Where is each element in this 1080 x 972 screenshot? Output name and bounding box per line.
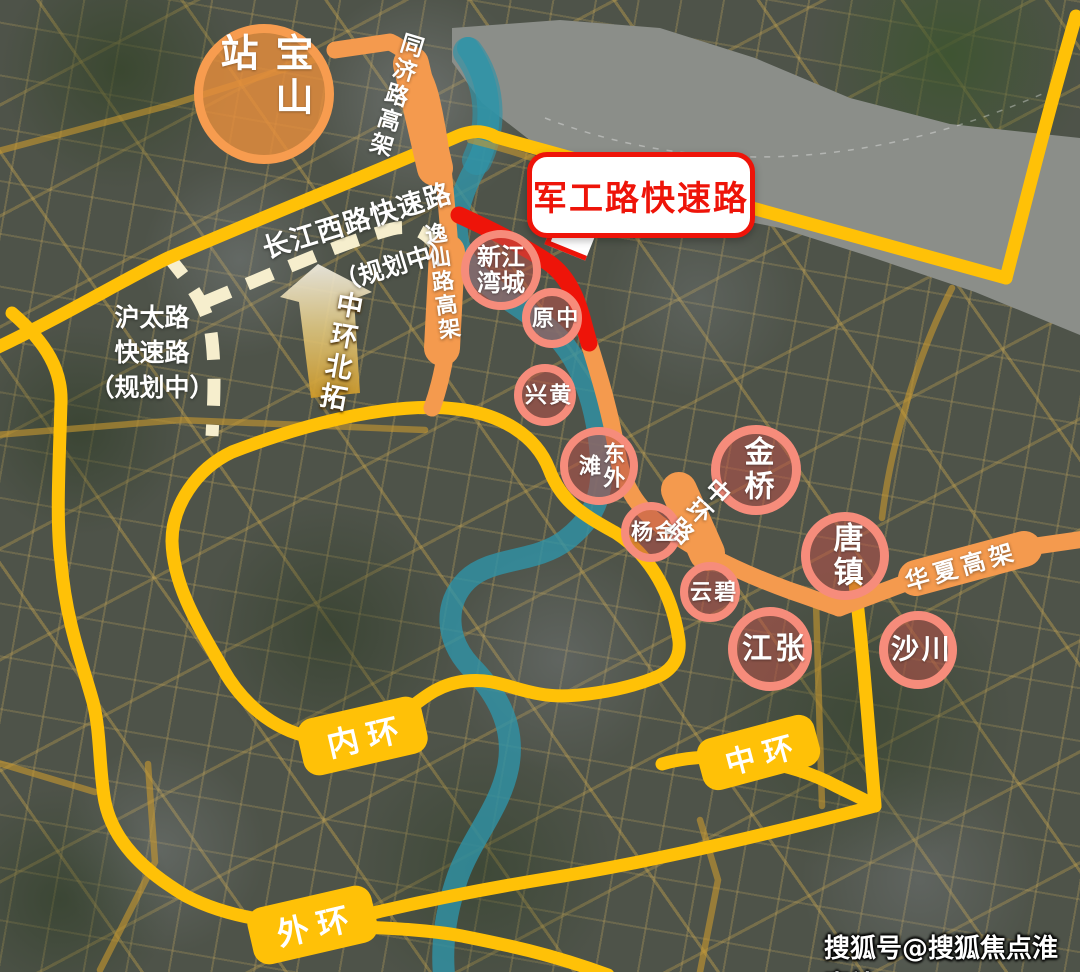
district-label: 金桥 [740, 436, 773, 504]
minor-road [0, 762, 95, 792]
station-label: 宝山站 [209, 33, 319, 155]
middle-ring-east-vertical [855, 583, 875, 806]
minor-road [882, 288, 952, 518]
district-label: 碧云 [686, 570, 734, 614]
district-circle-zhangjiang: 张江 [728, 607, 812, 691]
district-label: 东外滩 [575, 435, 623, 497]
district-label: 中原 [528, 296, 576, 340]
ring-badge-label: 外环 [272, 892, 362, 955]
callout-jungong: 军工路快速路 [527, 152, 755, 238]
district-label: 张江 [737, 616, 803, 682]
roads-layer [0, 0, 1080, 972]
district-circle-biyun: 碧云 [680, 562, 740, 622]
district-circle-zhongyuan: 中原 [522, 288, 582, 348]
district-circle-chuansha: 川沙 [879, 611, 957, 689]
district-circle-huangxing: 黄兴 [514, 364, 576, 426]
district-label: 黄兴 [521, 372, 569, 418]
district-label: 唐镇 [829, 522, 862, 590]
station-circle-baoshan: 宝山站 [194, 24, 334, 164]
district-circle-tangzhen: 唐镇 [801, 512, 889, 600]
shanghai-expressway-map: 宝山站 新江 湾城 中原 黄兴 东外滩 金杨 碧云 金桥 唐镇 张江 川沙 内环… [0, 0, 1080, 972]
planned-label-hutai: 沪太路 快速路 （规划中） [78, 300, 226, 405]
callout-label: 军工路快速路 [533, 171, 749, 220]
district-label: 川沙 [887, 620, 949, 680]
district-circle-dongwaitan: 东外滩 [560, 427, 638, 505]
ring-badge-label: 内环 [322, 703, 412, 766]
watermark: 搜狐号@搜狐焦点淮南站 [824, 928, 1080, 972]
middle-ring-southeast [352, 806, 875, 918]
